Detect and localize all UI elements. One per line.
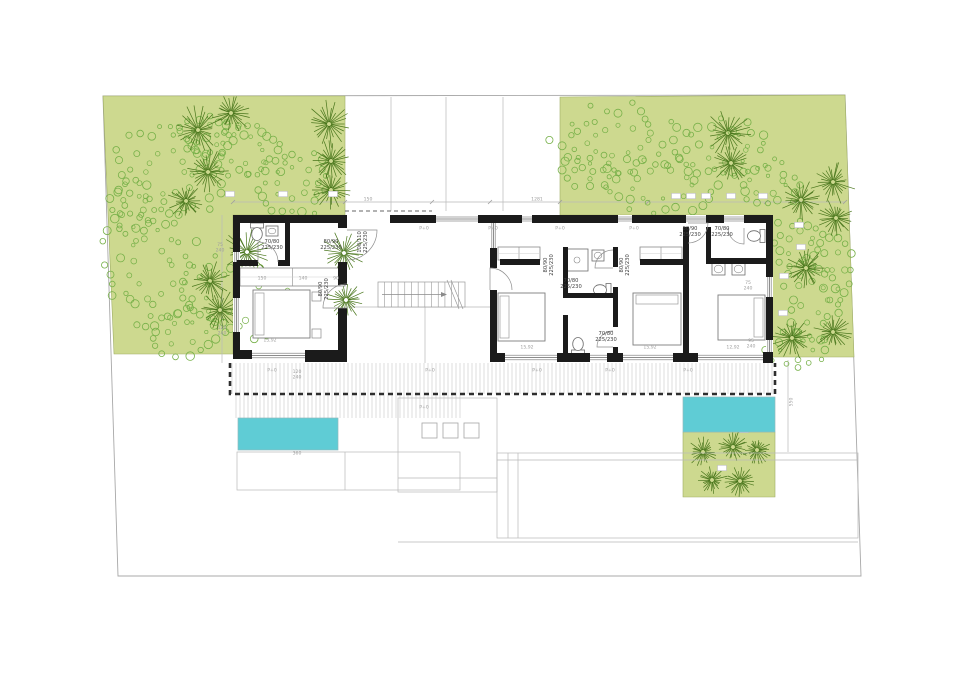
wall [490, 248, 497, 268]
dimension-label: 150 [364, 197, 373, 203]
dimension-label: 12,92 [726, 345, 739, 351]
door-size-label: 70/80225/230 [261, 239, 283, 251]
door-size-label: 70/80225/230 [711, 226, 733, 238]
wall [766, 297, 773, 340]
dimension-label: P+0 [605, 368, 615, 374]
svg-text:140: 140 [299, 276, 308, 282]
dimension-label: 150 [258, 276, 267, 282]
dimension-label: 90 [333, 276, 339, 282]
dimension-label: P+0 [555, 226, 565, 232]
tree-tag-chip [780, 273, 789, 278]
dimension-label: 360 [293, 451, 302, 457]
tree-tag-chip [329, 191, 338, 196]
tree-tag-chip [779, 310, 788, 315]
svg-text:75: 75 [745, 280, 751, 286]
toilet-icon [572, 338, 585, 356]
wall [607, 353, 623, 362]
svg-text:225/230: 225/230 [679, 232, 701, 238]
svg-text:240: 240 [216, 247, 225, 253]
dimension-label: P+0 [267, 368, 277, 374]
wall [683, 227, 689, 353]
tree-tag-chip [226, 191, 235, 196]
wall [233, 223, 240, 252]
dimension-label: 140 [299, 276, 308, 282]
svg-text:90: 90 [333, 276, 339, 282]
dimension-label: 15,92 [520, 345, 533, 351]
wall [557, 353, 590, 362]
floor-plan-svg: 70/80225/23080/90225/230100/110225/23080… [0, 0, 960, 679]
svg-text:225/230: 225/230 [595, 337, 617, 343]
wall [233, 262, 240, 298]
tree-tag-chip [727, 193, 736, 198]
svg-text:225/230: 225/230 [711, 232, 733, 238]
svg-text:225/230: 225/230 [363, 231, 369, 253]
tree-tag-chip [687, 193, 696, 198]
garden-right [560, 95, 854, 357]
svg-text:95: 95 [748, 338, 754, 344]
wall [766, 215, 773, 277]
svg-text:225/230: 225/230 [320, 245, 342, 251]
bed [253, 290, 310, 338]
wall [563, 293, 618, 298]
dimension-label: P+0 [629, 226, 639, 232]
toilet-icon [251, 223, 264, 241]
wall [233, 350, 252, 359]
door-size-label: 80/90225/230 [619, 254, 631, 276]
wall [632, 215, 686, 223]
wall [706, 258, 766, 264]
pool [683, 397, 775, 432]
dimension-label: 15,92 [263, 338, 276, 344]
wall [490, 353, 505, 362]
wall [532, 215, 618, 223]
svg-text:240: 240 [293, 374, 302, 380]
wall [338, 215, 347, 228]
svg-text:P+0: P+0 [555, 226, 565, 232]
dimension-label: P+0 [683, 368, 693, 374]
svg-text:240: 240 [218, 330, 227, 336]
bed [498, 293, 545, 341]
svg-text:360: 360 [293, 451, 302, 457]
shower-icon [566, 249, 588, 271]
svg-text:75: 75 [217, 242, 223, 248]
tree-tag-chip [718, 465, 727, 470]
svg-text:240: 240 [747, 343, 756, 349]
svg-text:225/230: 225/230 [549, 254, 555, 276]
garden-patch [683, 432, 775, 497]
dimension-label: P+0 [425, 368, 435, 374]
bed [633, 293, 681, 345]
tree-tag-chip [795, 222, 804, 227]
svg-text:P+0: P+0 [267, 368, 277, 374]
door-size-label: 80/90225/230 [679, 226, 701, 238]
bed [718, 295, 765, 340]
door-swing [490, 268, 512, 290]
svg-text:P+0: P+0 [425, 368, 435, 374]
wall [563, 315, 568, 353]
wall [285, 222, 290, 260]
svg-text:120: 120 [293, 369, 302, 375]
dimension-label: P+0 [419, 405, 429, 411]
wall [640, 259, 683, 265]
nightstand [312, 329, 321, 338]
wall [237, 260, 258, 266]
wall [390, 215, 436, 223]
toilet-icon [748, 230, 766, 243]
door-size-label: 70/80225/230 [595, 331, 617, 343]
sink-icon [592, 250, 604, 261]
svg-text:225/230: 225/230 [324, 278, 330, 300]
sink-icon [266, 226, 278, 236]
door-size-label: 70/80225/230 [560, 278, 582, 290]
svg-text:1281: 1281 [531, 197, 543, 203]
svg-text:15,92: 15,92 [263, 338, 276, 344]
wall [490, 290, 497, 353]
wall [706, 215, 724, 223]
wall [673, 353, 698, 362]
pool [238, 418, 338, 450]
dimension-label: 120240 [293, 369, 302, 380]
dimension-label: 75240 [744, 280, 753, 291]
svg-text:P+0: P+0 [419, 405, 429, 411]
dimension-label: P+0 [419, 226, 429, 232]
svg-text:240: 240 [744, 285, 753, 291]
wall [305, 350, 347, 362]
svg-text:12,92: 12,92 [726, 345, 739, 351]
svg-text:225/230: 225/230 [261, 245, 283, 251]
wall [233, 215, 345, 223]
svg-text:15,92: 15,92 [643, 345, 656, 351]
svg-text:15,92: 15,92 [520, 345, 533, 351]
door-size-label: 80/90225/230 [543, 254, 555, 276]
dimension-label: P+0 [532, 368, 542, 374]
svg-text:120: 120 [218, 325, 227, 331]
skylight-square [422, 423, 437, 438]
tree-tag-chip [279, 191, 288, 196]
wall [338, 262, 347, 285]
dimension-label: P+0 [488, 226, 498, 232]
svg-text:150: 150 [258, 276, 267, 282]
tree-tag-chip [672, 193, 681, 198]
tree-tag-chip [797, 244, 806, 249]
door-size-label: 100/110225/230 [357, 231, 369, 253]
dimension-label: 15,92 [643, 345, 656, 351]
svg-text:P+0: P+0 [629, 226, 639, 232]
wall [613, 247, 618, 267]
svg-text:P+0: P+0 [683, 368, 693, 374]
dimension-label: 120240 [218, 325, 227, 336]
wall [338, 308, 347, 350]
wall [278, 260, 290, 266]
wall [763, 352, 773, 363]
wall [613, 347, 618, 353]
dimension-label: 550 [789, 398, 795, 407]
skylight-square [464, 423, 479, 438]
svg-text:P+0: P+0 [419, 226, 429, 232]
wall [500, 259, 540, 265]
wall [478, 215, 522, 223]
svg-text:150: 150 [364, 197, 373, 203]
svg-text:P+0: P+0 [605, 368, 615, 374]
tree-tag-chip [702, 193, 711, 198]
floor-plan-canvas: 70/80225/23080/90225/230100/110225/23080… [0, 0, 960, 679]
svg-text:P+0: P+0 [488, 226, 498, 232]
staircase [378, 280, 465, 309]
svg-text:P+0: P+0 [532, 368, 542, 374]
svg-text:550: 550 [789, 398, 795, 407]
dimension-label: 1281 [531, 197, 543, 203]
skylight-square [443, 423, 458, 438]
svg-text:225/230: 225/230 [560, 284, 582, 290]
tree-tag-chip [759, 193, 768, 198]
svg-text:225/230: 225/230 [625, 254, 631, 276]
